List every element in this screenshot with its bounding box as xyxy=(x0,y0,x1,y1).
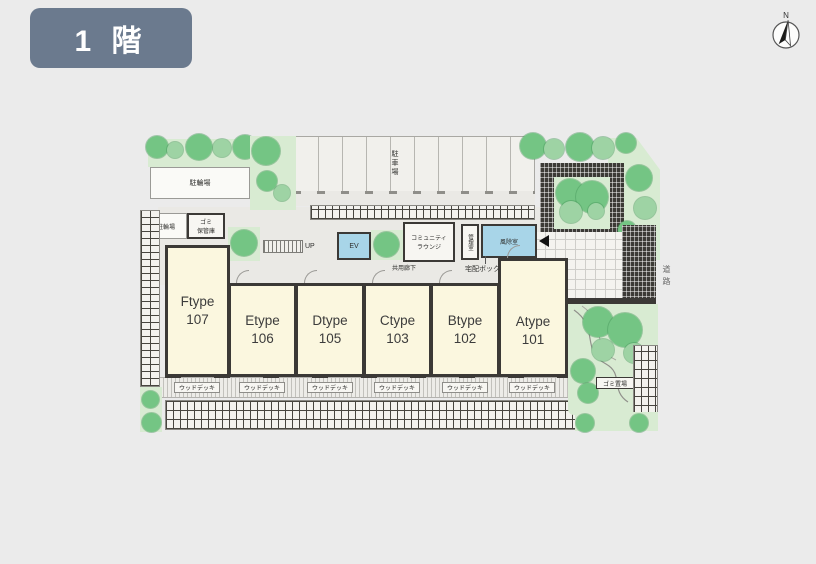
tree-icon xyxy=(252,137,280,165)
tree-icon xyxy=(231,230,257,256)
floor-selector-badge[interactable]: 1 階 xyxy=(30,8,192,68)
unit-e106: Etype 106 xyxy=(228,283,297,377)
windbreak-room-label: 風除室 xyxy=(500,237,518,246)
wood-deck-label-text: ウッドデッキ xyxy=(514,383,550,392)
compass-north-icon: N xyxy=(764,8,808,56)
tree-icon xyxy=(142,391,159,408)
unit-d105-number: 105 xyxy=(319,330,342,348)
tree-icon xyxy=(626,165,652,191)
hedge-strip-left xyxy=(140,210,160,387)
hedge-strip-top xyxy=(310,205,535,220)
floor-plan: 駐車場 駐輪場 駐輪場 ゴミ 保管庫 UP EV xyxy=(140,133,688,435)
tree-icon xyxy=(186,134,212,160)
tree-icon xyxy=(520,133,546,159)
unit-d105: Dtype 105 xyxy=(295,283,365,377)
garbage-area-box: ゴミ置場 xyxy=(596,377,634,389)
garbage-area-label: ゴミ置場 xyxy=(603,379,627,388)
unit-e106-type: Etype xyxy=(245,312,280,330)
tree-icon xyxy=(608,313,642,347)
dark-paving-band-right xyxy=(622,225,656,307)
unit-a101: Atype 101 xyxy=(498,258,568,377)
tree-icon xyxy=(634,197,656,219)
tree-icon xyxy=(630,414,648,432)
wood-deck-label-text: ウッドデッキ xyxy=(312,383,348,392)
unit-f107-number: 107 xyxy=(186,311,209,329)
unit-f107: Ftype 107 xyxy=(165,245,230,377)
garbage-storage-room: ゴミ 保管庫 xyxy=(187,213,225,239)
wood-deck-label-text: ウッドデッキ xyxy=(244,383,280,392)
community-lounge-label-1: コミュニティ xyxy=(411,233,447,242)
wood-deck-label: ウッドデッキ xyxy=(239,382,285,393)
unit-b102: Btype 102 xyxy=(430,283,500,377)
bicycle-parking-top-label: 駐輪場 xyxy=(190,178,211,188)
unit-a101-type: Atype xyxy=(516,313,551,331)
tree-icon xyxy=(571,359,595,383)
tree-icon xyxy=(167,142,183,158)
unit-a101-number: 101 xyxy=(522,331,545,349)
unit-b102-number: 102 xyxy=(454,330,477,348)
unit-c103-number: 103 xyxy=(386,330,409,348)
stairs xyxy=(263,240,303,253)
hedge-strip-bottom xyxy=(165,400,577,430)
common-corridor-label: 共用廊下 xyxy=(392,263,416,272)
unit-c103: Ctype 103 xyxy=(363,283,432,377)
unit-c103-type: Ctype xyxy=(380,312,415,330)
management-room-label: 管理室 xyxy=(466,234,474,251)
community-lounge: コミュニティ ラウンジ xyxy=(403,222,455,262)
tree-icon xyxy=(213,139,231,157)
tree-icon xyxy=(576,414,594,432)
unit-terrace-doors xyxy=(165,374,574,378)
wood-deck-label-text: ウッドデッキ xyxy=(179,383,215,392)
tree-icon xyxy=(588,203,604,219)
tree-icon xyxy=(142,413,161,432)
unit-e106-number: 106 xyxy=(251,330,274,348)
entrance-arrow-icon xyxy=(539,235,549,247)
tree-icon xyxy=(544,139,564,159)
garbage-storage-label-2: 保管庫 xyxy=(197,226,215,235)
tree-icon xyxy=(578,383,598,403)
unit-b102-type: Btype xyxy=(448,312,483,330)
wood-deck-label: ウッドデッキ xyxy=(509,382,555,393)
tree-icon xyxy=(274,185,290,201)
wood-deck-label: ウッドデッキ xyxy=(307,382,353,393)
management-room: 管理室 xyxy=(461,224,479,260)
road-label: 道路 xyxy=(661,265,672,289)
wood-deck-label-text: ウッドデッキ xyxy=(447,383,483,392)
bicycle-parking-top: 駐輪場 xyxy=(150,167,250,199)
unit-f107-type: Ftype xyxy=(181,293,215,311)
garbage-storage-label-1: ゴミ xyxy=(200,217,212,226)
elevator-label: EV xyxy=(349,243,358,250)
stairs-up-label: UP xyxy=(305,243,315,250)
parking-wheel-stops xyxy=(293,191,535,194)
wood-deck-label: ウッドデッキ xyxy=(442,382,488,393)
tree-icon xyxy=(566,133,594,161)
tree-icon xyxy=(560,201,582,223)
tree-icon xyxy=(616,133,636,153)
tree-icon xyxy=(146,136,168,158)
wood-deck-label: ウッドデッキ xyxy=(174,382,220,393)
parking-label: 駐車場 xyxy=(389,150,399,177)
wood-deck-label: ウッドデッキ xyxy=(374,382,420,393)
tree-icon xyxy=(592,339,614,361)
compass-north-label: N xyxy=(783,11,789,20)
wood-deck-label-text: ウッドデッキ xyxy=(379,383,415,392)
tree-icon xyxy=(374,232,399,257)
tree-icon xyxy=(257,171,277,191)
unit-d105-type: Dtype xyxy=(312,312,347,330)
parking-stalls xyxy=(293,136,535,191)
tree-icon xyxy=(592,137,614,159)
elevator: EV xyxy=(337,232,371,260)
delivery-box-leader-line xyxy=(485,256,486,264)
community-lounge-label-2: ラウンジ xyxy=(417,242,441,251)
